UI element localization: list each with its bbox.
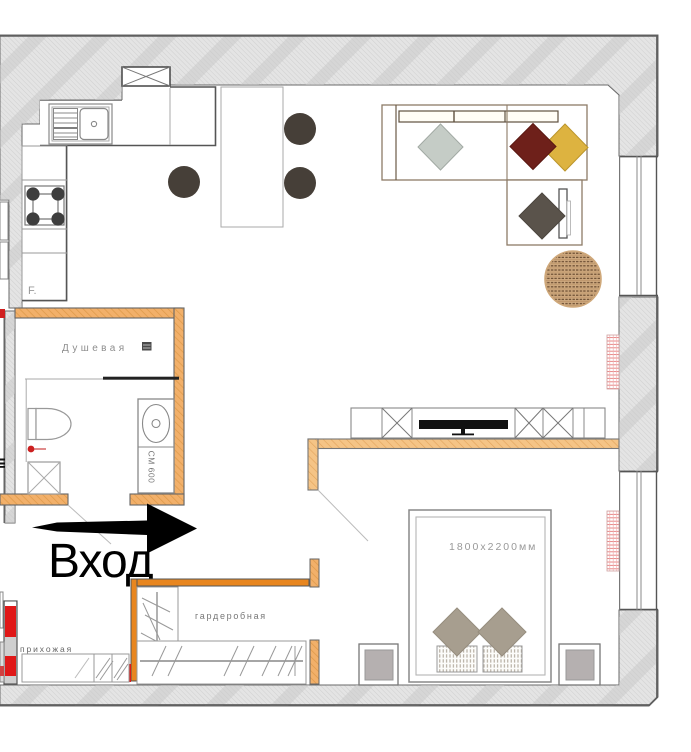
svg-text:гардеробная: гардеробная	[195, 611, 267, 621]
svg-text:Душевая: Душевая	[62, 343, 128, 354]
svg-text:прихожая: прихожая	[20, 644, 73, 654]
svg-text:F.: F.	[28, 285, 37, 297]
svg-text:СМ 600: СМ 600	[147, 451, 157, 484]
svg-text:1800x2200мм: 1800x2200мм	[449, 541, 537, 553]
